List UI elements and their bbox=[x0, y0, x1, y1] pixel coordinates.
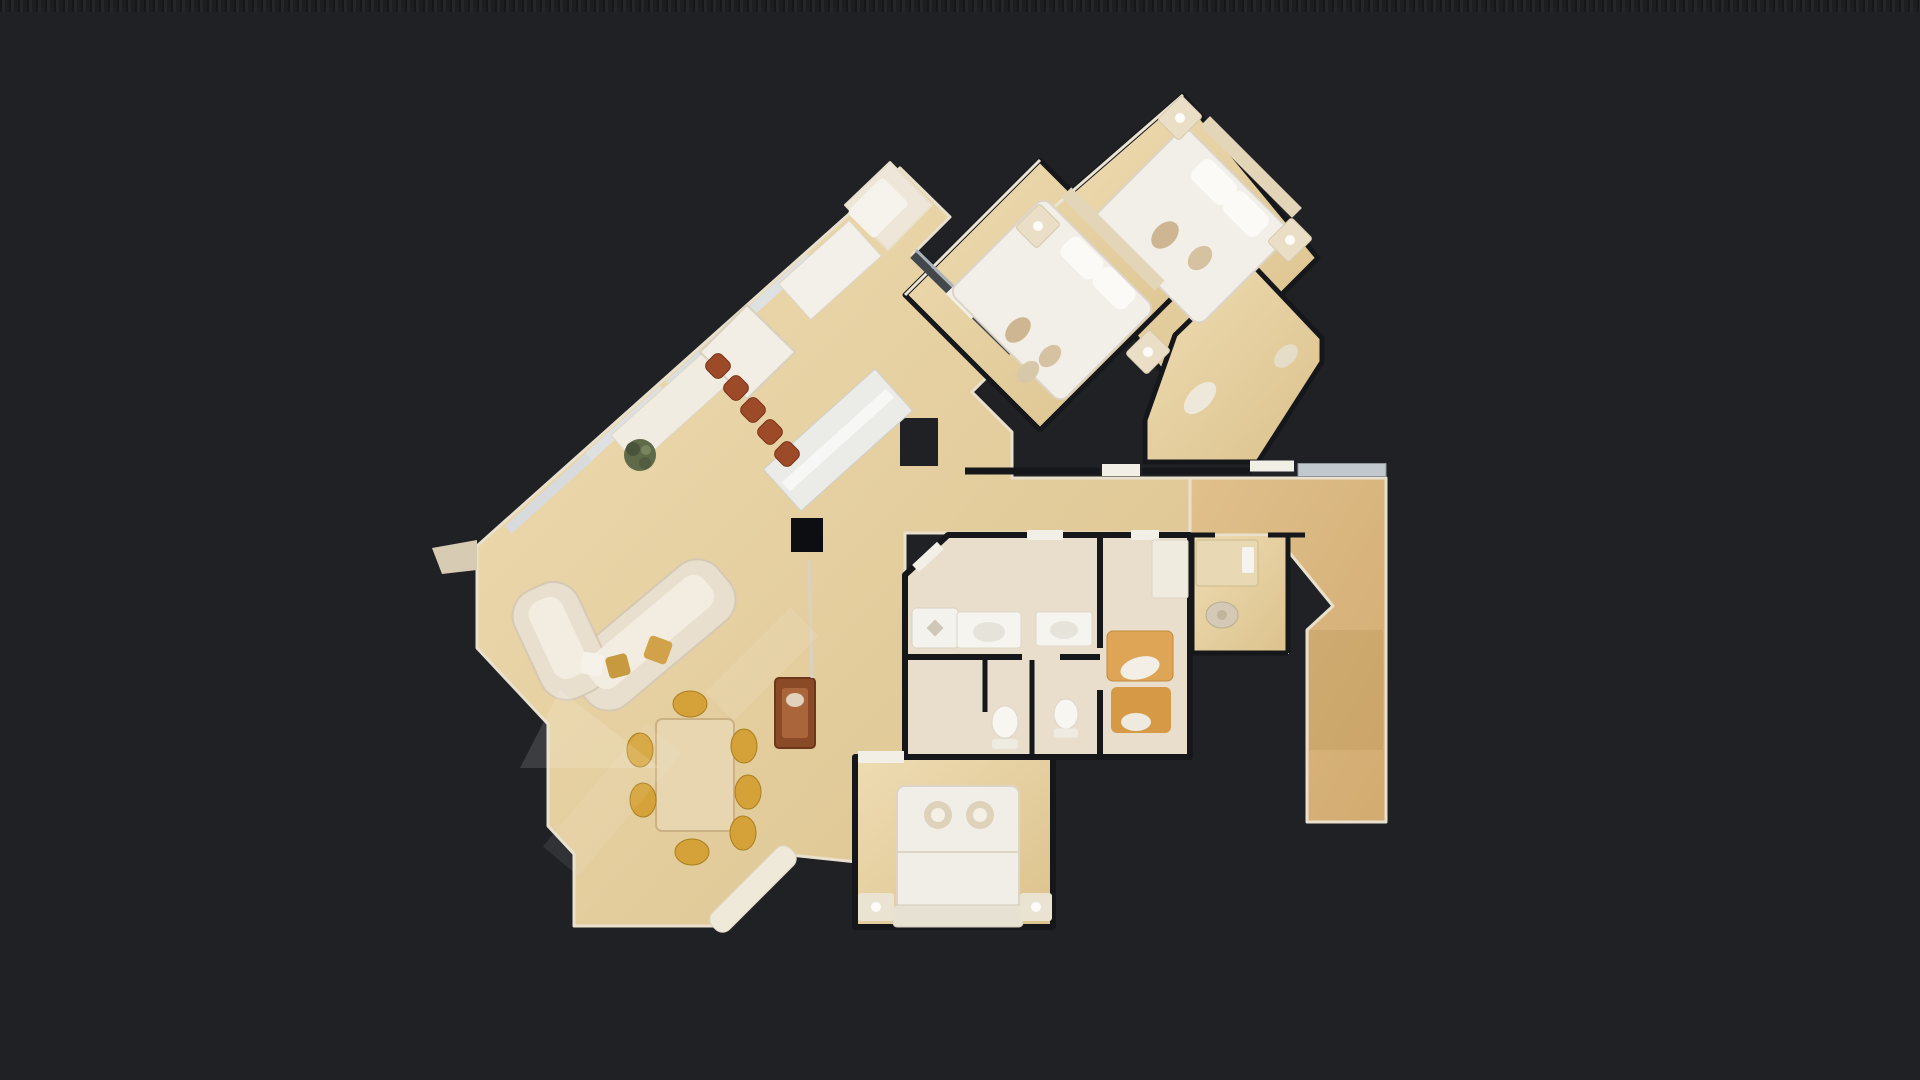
bed2-lamp-b bbox=[1143, 347, 1153, 357]
toilet-a bbox=[992, 706, 1018, 738]
strip-floor-shade bbox=[1309, 630, 1383, 750]
floorplan-shapes bbox=[0, 0, 1920, 1080]
toilet-b-tank bbox=[1054, 729, 1078, 738]
plant-leaf-dark-b bbox=[639, 457, 651, 469]
plant-leaf-light bbox=[641, 445, 651, 455]
structural-column bbox=[791, 518, 823, 552]
office-chair-hub bbox=[1217, 610, 1227, 620]
dining-chair-3 bbox=[735, 775, 761, 809]
sink-basin-b bbox=[1050, 621, 1078, 639]
bed3-headboard bbox=[893, 905, 1023, 927]
sink-basin-a bbox=[973, 622, 1005, 642]
corridor-door-2 bbox=[1250, 461, 1294, 472]
closet-door bbox=[1131, 530, 1159, 540]
toilet-b bbox=[1054, 699, 1078, 729]
dining-chair-5 bbox=[675, 839, 709, 865]
bed1-lamp-b bbox=[1285, 235, 1295, 245]
bed3 bbox=[897, 786, 1019, 910]
bed1-lamp-a bbox=[1175, 113, 1185, 123]
sofa-pillow-white bbox=[579, 651, 604, 676]
screenshot-root bbox=[0, 0, 1920, 1080]
floorplan-canvas[interactable] bbox=[0, 0, 1920, 1080]
office-monitor bbox=[1242, 547, 1254, 573]
sideboard-deco bbox=[786, 693, 804, 707]
closet-shelf bbox=[1152, 540, 1188, 598]
dining-chair-1 bbox=[673, 691, 707, 717]
corridor-window bbox=[1298, 464, 1386, 477]
bathroom-door-b bbox=[1027, 530, 1063, 540]
closet-linens-b bbox=[1121, 713, 1151, 731]
plant-leaf-dark-a bbox=[626, 442, 640, 456]
scan-hole bbox=[900, 418, 938, 466]
dining-chair-2 bbox=[731, 729, 757, 763]
bed3-pillow-a-inner bbox=[931, 808, 945, 822]
bed3-lamp-a bbox=[871, 902, 881, 912]
toilet-a-tank bbox=[992, 739, 1018, 749]
dining-table bbox=[656, 719, 734, 831]
bed3-pillow-b-inner bbox=[973, 808, 987, 822]
dining-chair-4 bbox=[730, 816, 756, 850]
bed2-lamp-a bbox=[1033, 221, 1043, 231]
bed3-lamp-b bbox=[1031, 902, 1041, 912]
corridor-door-1 bbox=[1102, 464, 1140, 476]
bedroom3-door bbox=[858, 751, 904, 763]
